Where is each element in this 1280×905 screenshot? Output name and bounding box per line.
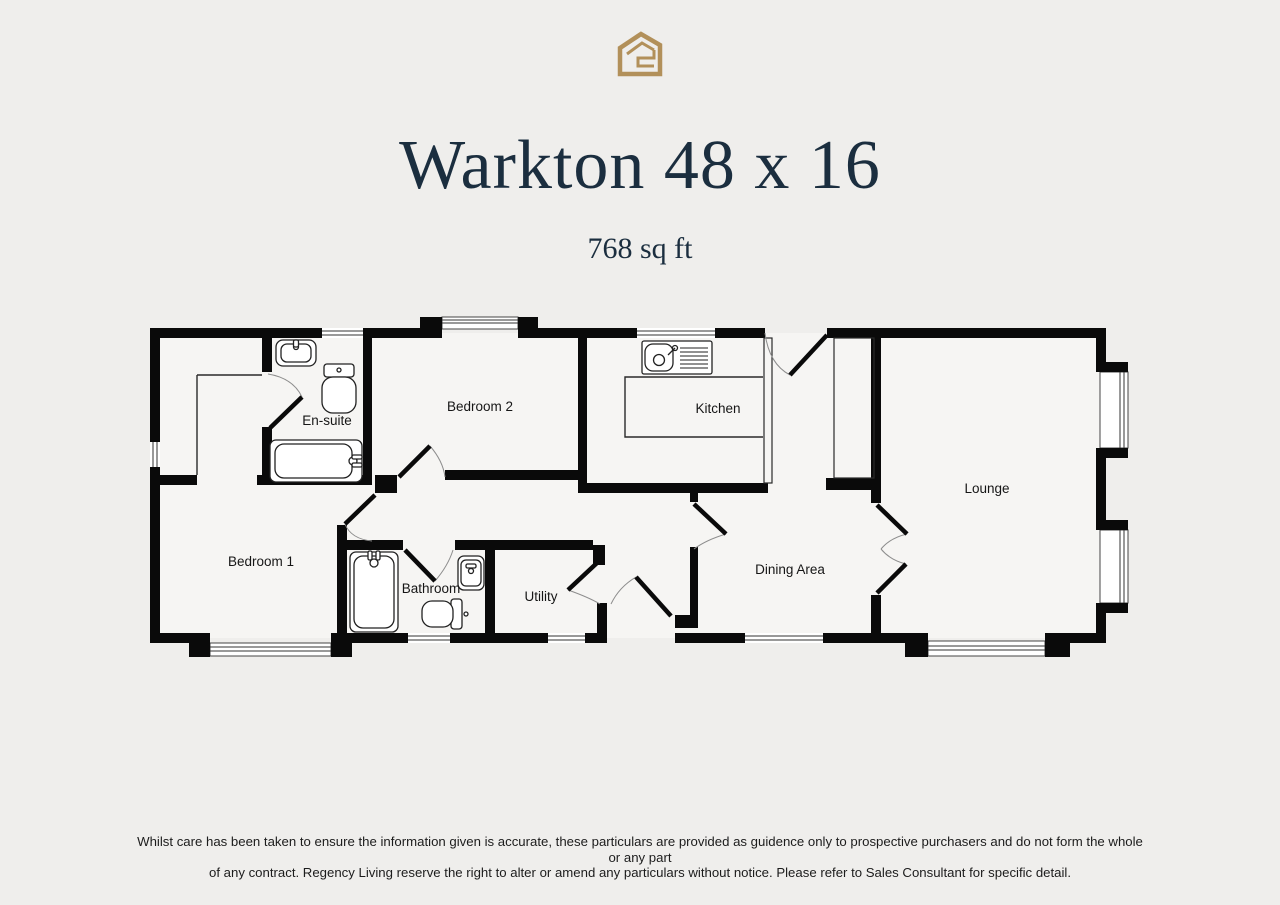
room-label-dining: Dining Area: [755, 562, 825, 577]
disclaimer-line-1: Whilst care has been taken to ensure the…: [135, 834, 1145, 865]
bathroom-window: [408, 633, 450, 643]
room-label-bathroom: Bathroom: [402, 581, 461, 596]
bathroom-sink: [458, 556, 484, 590]
bathroom-toilet: [422, 599, 468, 629]
lounge-right-window-lower: [1096, 520, 1128, 613]
kitchen-sink: [642, 341, 712, 374]
room-label-ensuite: En-suite: [302, 413, 352, 428]
room-label-utility: Utility: [525, 589, 558, 604]
room-label-bedroom2: Bedroom 2: [447, 399, 513, 414]
ensuite-sink: [276, 340, 316, 366]
room-label-bedroom1: Bedroom 1: [228, 554, 294, 569]
ensuite-toilet: [322, 364, 356, 413]
ensuite-bath: [270, 440, 362, 482]
utility-window: [548, 633, 585, 643]
bedroom1-side-window: [150, 442, 160, 467]
room-label-kitchen: Kitchen: [695, 401, 740, 416]
bathroom-bath: [350, 551, 398, 632]
room-label-lounge: Lounge: [964, 481, 1009, 496]
disclaimer: Whilst care has been taken to ensure the…: [135, 834, 1145, 881]
kitchen-window: [637, 328, 715, 338]
ensuite-window: [322, 328, 363, 338]
lounge-right-window-upper: [1096, 362, 1128, 458]
dining-window: [745, 633, 823, 643]
disclaimer-line-2: of any contract. Regency Living reserve …: [135, 865, 1145, 881]
floorplan-drawing: En-suite Bedroom 2 Kitchen Lounge Bedroo…: [0, 0, 1280, 905]
page: Warkton 48 x 16 768 sq ft: [0, 0, 1280, 905]
